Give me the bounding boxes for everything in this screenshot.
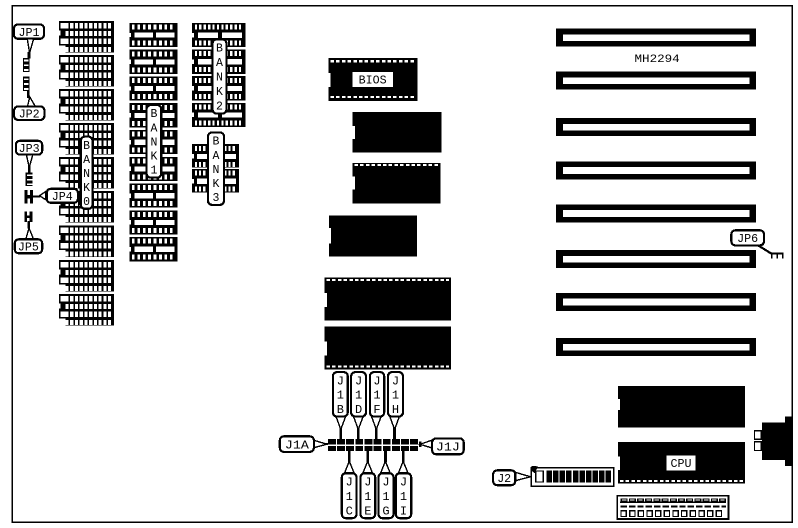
svg-text:B: B	[216, 43, 223, 56]
svg-text:J1J: J1J	[436, 441, 460, 455]
svg-text:J: J	[346, 476, 353, 490]
svg-text:MH2294: MH2294	[635, 54, 680, 66]
svg-text:JP5: JP5	[18, 241, 39, 255]
svg-text:1: 1	[392, 389, 399, 403]
svg-text:B: B	[83, 140, 90, 153]
svg-text:1: 1	[346, 490, 353, 504]
svg-text:K: K	[213, 178, 220, 191]
svg-text:A: A	[216, 57, 223, 70]
svg-text:JP6: JP6	[737, 232, 758, 246]
svg-text:K: K	[216, 86, 223, 99]
svg-text:1: 1	[382, 490, 389, 504]
svg-text:CPU: CPU	[671, 457, 692, 471]
svg-text:H: H	[392, 403, 399, 417]
svg-text:J1A: J1A	[285, 438, 310, 452]
svg-text:B: B	[337, 403, 344, 417]
svg-text:K: K	[150, 151, 157, 164]
svg-text:J: J	[392, 375, 399, 389]
svg-text:0: 0	[83, 196, 90, 209]
svg-text:JP4: JP4	[52, 190, 73, 204]
svg-text:2: 2	[216, 101, 223, 114]
svg-text:JP2: JP2	[19, 108, 40, 122]
svg-text:B: B	[213, 136, 220, 149]
svg-text:J: J	[337, 375, 344, 389]
svg-text:J: J	[373, 375, 380, 389]
svg-text:A: A	[150, 122, 157, 135]
svg-text:1: 1	[373, 389, 380, 403]
svg-text:F: F	[373, 403, 380, 417]
svg-text:1: 1	[150, 165, 157, 178]
svg-text:BIOS: BIOS	[359, 74, 387, 88]
svg-text:1: 1	[337, 389, 344, 403]
svg-text:J2: J2	[497, 472, 511, 486]
svg-text:E: E	[364, 504, 371, 518]
svg-text:N: N	[213, 164, 220, 177]
svg-text:1: 1	[364, 490, 371, 504]
svg-text:J: J	[364, 476, 371, 490]
svg-text:G: G	[382, 504, 389, 518]
svg-text:D: D	[355, 403, 362, 417]
svg-text:J: J	[382, 476, 389, 490]
svg-text:JP3: JP3	[19, 142, 40, 156]
svg-text:B: B	[150, 108, 157, 121]
svg-text:C: C	[346, 504, 353, 518]
svg-text:J: J	[400, 476, 407, 490]
svg-text:JP1: JP1	[19, 26, 40, 40]
svg-text:N: N	[216, 72, 223, 85]
svg-text:N: N	[150, 136, 157, 149]
svg-text:3: 3	[213, 192, 220, 205]
svg-text:N: N	[83, 168, 90, 181]
svg-text:J: J	[355, 375, 362, 389]
svg-text:1: 1	[355, 389, 362, 403]
svg-text:A: A	[83, 154, 90, 167]
svg-text:A: A	[213, 150, 220, 163]
svg-text:1: 1	[400, 490, 407, 504]
svg-text:I: I	[400, 504, 407, 518]
svg-text:K: K	[83, 182, 90, 195]
